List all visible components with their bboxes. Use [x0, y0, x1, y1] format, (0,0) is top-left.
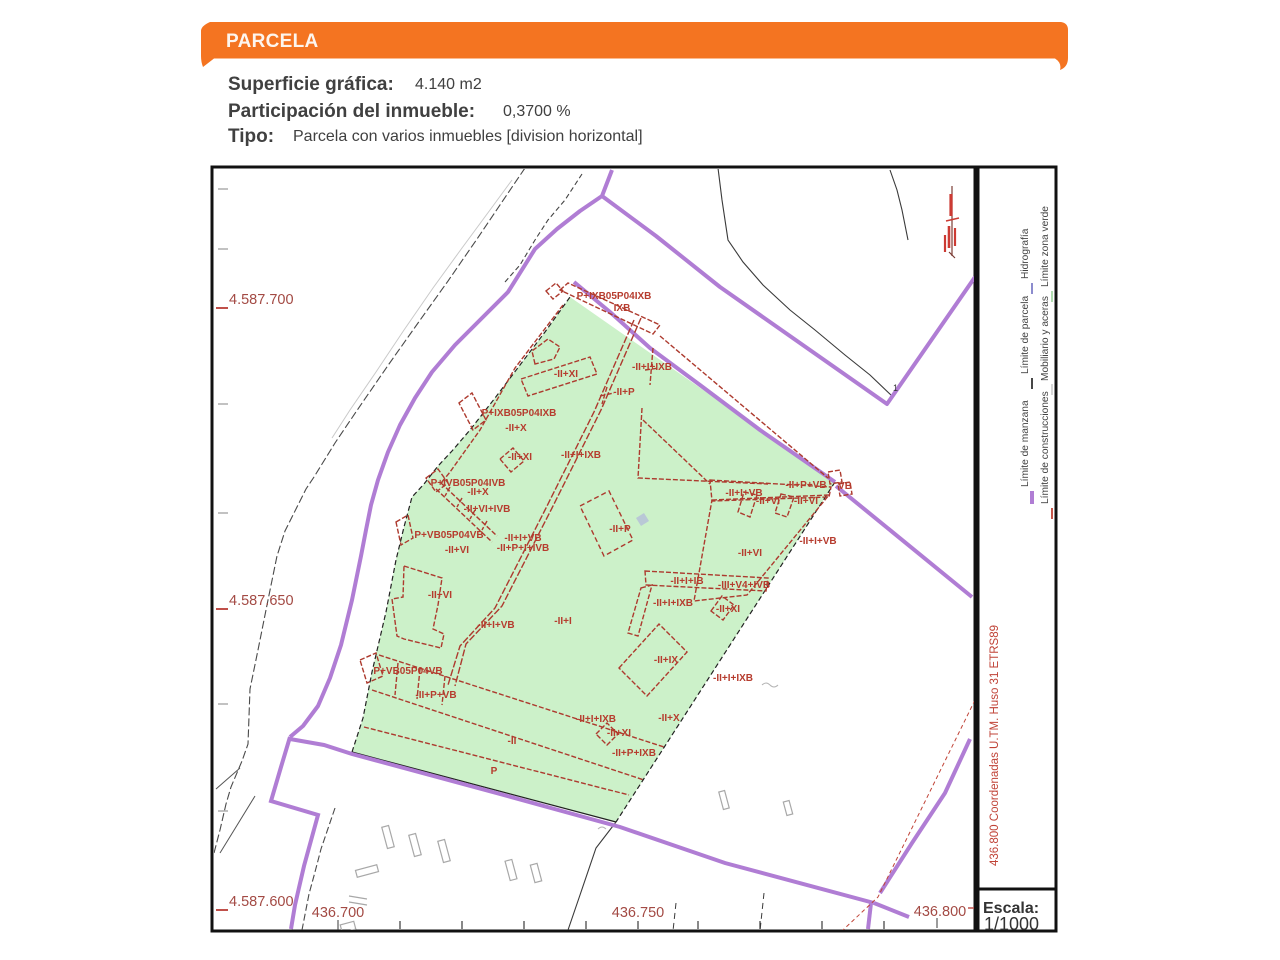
svg-text:-II+I+IB: -II+I+IB — [670, 576, 703, 587]
svg-text:1: 1 — [893, 383, 898, 393]
svg-text:-II+VI: -II+VI — [794, 496, 818, 507]
svg-text:Límite de manzana: Límite de manzana — [1020, 400, 1031, 487]
svg-text:-II+IX: -II+IX — [654, 655, 679, 666]
svg-text:Límite zona verde: Límite zona verde — [1040, 206, 1051, 287]
svg-text:-II+I+IXB: -II+I+IXB — [713, 673, 753, 684]
svg-text:436.700: 436.700 — [312, 905, 364, 921]
svg-text:-II+I+IXB: -II+I+IXB — [561, 450, 601, 461]
svg-text:P+IXB05P04IXB: P+IXB05P04IXB — [577, 291, 652, 302]
svg-text:-II+I+IXB: -II+I+IXB — [576, 714, 616, 725]
svg-text:-II+VI: -II+VI — [738, 548, 762, 559]
svg-text:0,3700 %: 0,3700 % — [503, 103, 571, 120]
svg-text:-II+VI: -II+VI — [428, 590, 452, 601]
svg-text:Tipo:: Tipo: — [228, 126, 274, 147]
svg-text:P: P — [491, 766, 498, 777]
svg-text:436.750: 436.750 — [612, 905, 664, 921]
svg-text:Superficie gráfica:: Superficie gráfica: — [228, 74, 394, 95]
svg-text:-II+X: -II+X — [467, 487, 489, 498]
svg-text:-II: -II — [508, 736, 517, 747]
svg-text:-II+I+VB: -II+I+VB — [477, 620, 514, 631]
svg-text:-II+P: -II+P — [609, 524, 631, 535]
svg-text:Participación del inmueble:: Participación del inmueble: — [228, 101, 475, 122]
svg-text:-II+VI: -II+VI — [445, 545, 469, 556]
svg-text:-II+XI: -II+XI — [554, 369, 578, 380]
svg-text:-II+P+VB: -II+P+VB — [415, 690, 456, 701]
svg-text:-II+I+VB: -II+I+VB — [799, 536, 836, 547]
svg-text:IXB: IXB — [614, 303, 631, 314]
svg-text:Límite de parcela: Límite de parcela — [1020, 296, 1031, 374]
svg-text:Parcela con varios inmuebles [: Parcela con varios inmuebles [division h… — [293, 128, 643, 145]
svg-text:P+IXB05P04IXB: P+IXB05P04IXB — [482, 408, 557, 419]
svg-text:4.587.650: 4.587.650 — [229, 593, 294, 609]
svg-text:-II+X: -II+X — [505, 423, 527, 434]
svg-text:-II+I+IXB: -II+I+IXB — [632, 362, 672, 373]
svg-text:-III+V4+IVB: -III+V4+IVB — [718, 580, 770, 591]
svg-text:-II+P+VB: -II+P+VB — [785, 480, 826, 491]
svg-text:P+VB05P04VB: P+VB05P04VB — [414, 530, 483, 541]
svg-text:436.800: 436.800 — [914, 904, 966, 920]
svg-text:-II+XI: -II+XI — [508, 452, 532, 463]
svg-text:-II+I: -II+I — [554, 616, 572, 627]
svg-text:4.140 m2: 4.140 m2 — [415, 76, 482, 93]
svg-text:Límite de construcciones: Límite de construcciones — [1040, 391, 1051, 504]
svg-text:VB: VB — [838, 481, 852, 492]
svg-text:-II+P: -II+P — [613, 387, 635, 398]
svg-text:-II+X: -II+X — [658, 713, 680, 724]
svg-text:-II+VI+IVB: -II+VI+IVB — [464, 504, 511, 515]
svg-text:Mobiliario y aceras: Mobiliario y aceras — [1040, 296, 1051, 381]
svg-text:P+VB05P04VB: P+VB05P04VB — [373, 666, 442, 677]
svg-text:Hidrografía: Hidrografía — [1020, 228, 1031, 279]
svg-text:-II+P+I+IVB: -II+P+I+IVB — [497, 543, 550, 554]
svg-text:4.587.600: 4.587.600 — [229, 894, 294, 910]
svg-text:-II+XI: -II+XI — [716, 604, 740, 615]
svg-text:-II+P+IXB: -II+P+IXB — [612, 748, 656, 759]
svg-text:4.587.700: 4.587.700 — [229, 292, 294, 308]
svg-text:PARCELA: PARCELA — [226, 31, 319, 52]
svg-text:-II+I+IXB: -II+I+IXB — [653, 598, 693, 609]
svg-text:436.800 Coordenadas U.TM. Huso: 436.800 Coordenadas U.TM. Huso 31 ETRS89 — [989, 625, 1001, 866]
svg-text:1/1000: 1/1000 — [984, 914, 1039, 934]
svg-text:-II+XI: -II+XI — [607, 728, 631, 739]
svg-text:-II+VI: -II+VI — [756, 496, 780, 507]
